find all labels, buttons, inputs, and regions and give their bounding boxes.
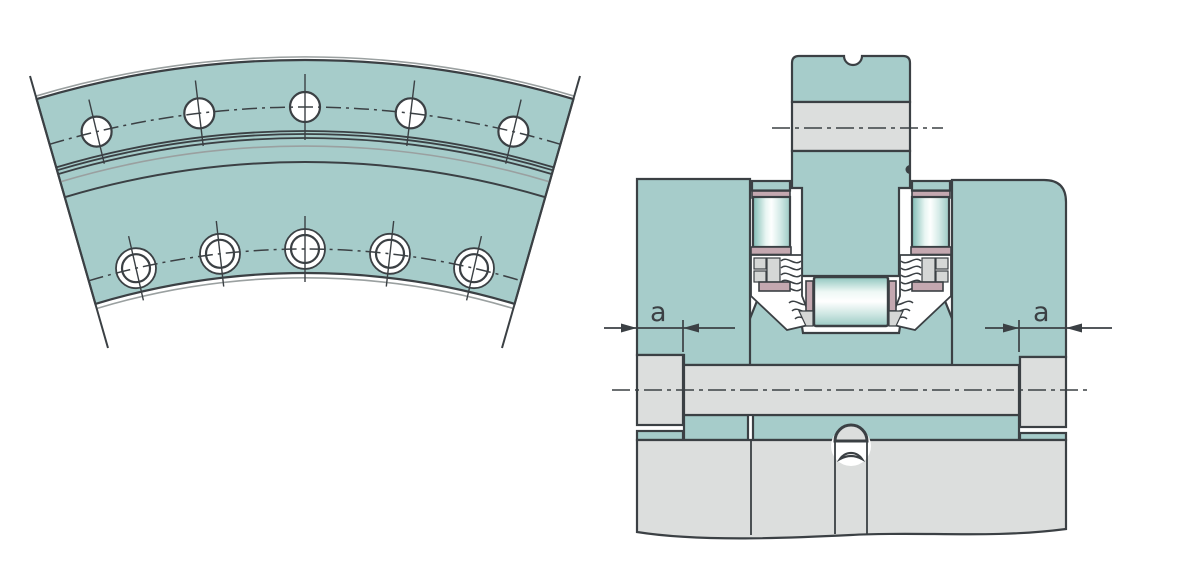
axial-roller-right: [912, 197, 949, 247]
stud-top: [792, 56, 910, 102]
cage-strip: [751, 247, 791, 255]
ring-segment-plan-view: [30, 57, 580, 348]
radial-roller-cage-left: [806, 281, 813, 311]
preload-piston-seal: [759, 282, 790, 291]
dimension-label-a-right: a: [1033, 297, 1050, 328]
housing-left: [637, 179, 750, 365]
support-ring-strip: [753, 415, 1019, 440]
outer-ring-lip-left: [752, 181, 790, 191]
arrowhead-right-icon: [621, 324, 637, 333]
preload-piston-seal: [912, 282, 943, 291]
support-ring-strip: [684, 415, 748, 440]
bearing-drawing-svg: a a: [0, 0, 1200, 575]
dimension-label-a-left: a: [650, 297, 667, 328]
stud-journal-band: [792, 102, 910, 151]
arrowhead-left-icon: [1066, 324, 1082, 333]
bearing-cross-section: a a: [604, 56, 1112, 538]
cage-strip: [911, 247, 951, 255]
housing-right: [952, 180, 1066, 367]
support-ring-strip: [637, 431, 683, 440]
radial-roller: [814, 277, 888, 326]
outer-ring-lip-right: [912, 181, 950, 191]
radial-roller-cage-right: [889, 281, 896, 311]
technical-drawing-page: a a: [0, 0, 1200, 575]
clamping-flange-right: [1020, 357, 1066, 427]
stud-body: [792, 151, 910, 276]
axial-roller-left: [753, 197, 790, 247]
